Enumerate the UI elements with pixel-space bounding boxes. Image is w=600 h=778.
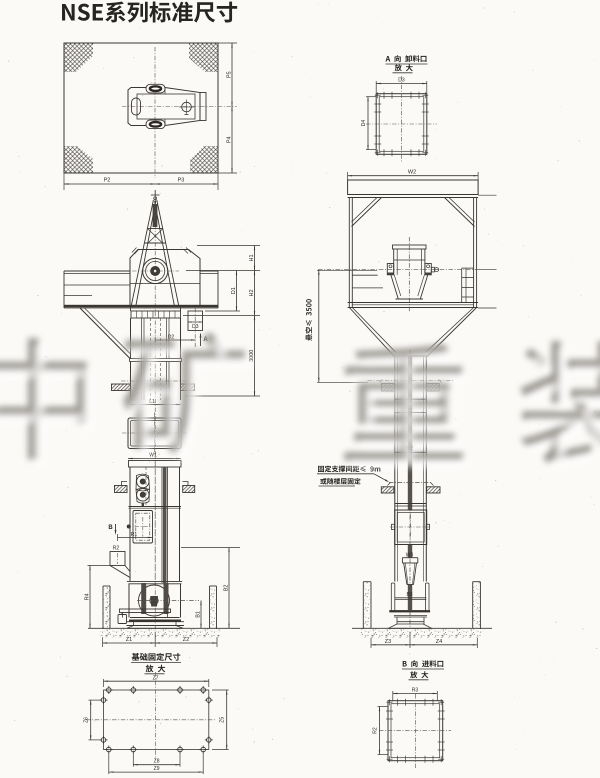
svg-text:L1: L1 bbox=[149, 399, 155, 405]
svg-text:B3: B3 bbox=[406, 592, 412, 598]
svg-text:P2: P2 bbox=[104, 178, 111, 184]
svg-text:D1: D1 bbox=[231, 287, 237, 294]
svg-text:Z2: Z2 bbox=[183, 637, 189, 643]
svg-text:R1: R1 bbox=[131, 532, 138, 538]
svg-text:Z9: Z9 bbox=[154, 766, 160, 772]
svg-text:Z1: Z1 bbox=[126, 637, 132, 643]
svg-text:Z4: Z4 bbox=[436, 639, 442, 645]
svg-text:R4: R4 bbox=[85, 593, 91, 600]
svg-text:R2: R2 bbox=[113, 546, 120, 552]
svg-text:B1: B1 bbox=[196, 611, 202, 618]
svg-text:H1: H1 bbox=[249, 254, 255, 261]
svg-text:Z5: Z5 bbox=[220, 717, 226, 723]
svg-text:Z7: Z7 bbox=[153, 676, 159, 682]
svg-text:D3: D3 bbox=[192, 324, 199, 330]
svg-text:W2: W2 bbox=[408, 170, 416, 176]
svg-text:Z6: Z6 bbox=[84, 717, 90, 723]
svg-text:H2: H2 bbox=[249, 289, 255, 296]
svg-text:D4: D4 bbox=[361, 120, 367, 127]
svg-text:B2: B2 bbox=[224, 585, 230, 592]
svg-text:Z8: Z8 bbox=[154, 759, 160, 765]
svg-text:W1: W1 bbox=[149, 453, 157, 459]
svg-text:B: B bbox=[108, 525, 113, 531]
svg-text:R2: R2 bbox=[372, 727, 378, 734]
svg-text:Z3: Z3 bbox=[385, 639, 391, 645]
svg-text:P5: P5 bbox=[227, 71, 233, 78]
svg-text:R3: R3 bbox=[412, 688, 419, 694]
svg-text:P4: P4 bbox=[227, 136, 233, 143]
svg-text:P3: P3 bbox=[178, 178, 185, 184]
